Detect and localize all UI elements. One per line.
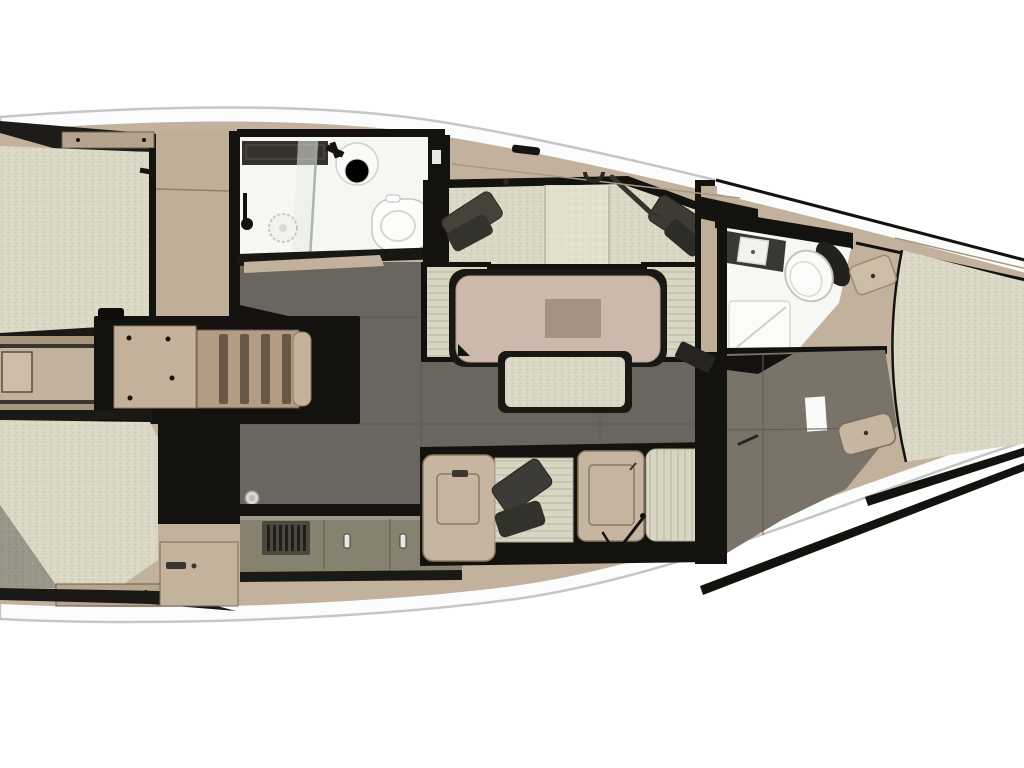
salon-table-inset [545,299,601,338]
galley-sink-drain-inner [249,495,255,501]
fwd-sink-drain [751,250,755,254]
vent-slat-3 [279,525,282,551]
platform-screw-4 [128,396,133,401]
header-screw-left [76,138,80,142]
step-tread-1 [219,334,228,404]
step-tread-2 [240,334,249,404]
wardrobe-gap-shadow [149,148,156,322]
vent-slat-5 [291,525,294,551]
aft-berth-port [0,146,150,333]
bow-deck-locker-dot [871,274,875,278]
companionway-platform [114,326,196,408]
shower-drain-center [279,224,287,232]
transom-step [2,352,32,392]
shower-mixer-knob [241,218,253,230]
platform-screw-2 [166,337,171,342]
locker-hardware-bar [166,562,186,569]
vberth-mattress [892,250,1024,462]
settee-mid-cushion [546,185,608,264]
step-tread-3 [261,334,270,404]
steps-end-cap [293,332,311,406]
fwd-door-gap [805,396,827,431]
step-tread-4 [282,334,291,404]
sheet-block [640,513,646,519]
shadow-right-of-aft-bench [158,420,240,524]
aft-wardrobe [156,130,230,322]
galley-handle-1 [344,534,350,548]
head-sink-bowl [345,159,369,183]
galley-handle-2 [400,534,406,548]
vent-slat-4 [285,525,288,551]
nav-cabinet-a-notch [452,470,468,477]
stern-locker-panel [160,542,238,606]
floorplan-shapes [0,108,1024,622]
vent-slat-1 [267,525,270,551]
head-wall-sliver-1 [432,150,441,164]
fwd-shower-pan [729,301,790,351]
platform-screw-1 [127,336,132,341]
fwd-cabin-bench-dot [864,431,868,435]
locker-hardware-knob [192,564,197,569]
vent-slat-6 [297,525,300,551]
floorplan-svg [0,0,1024,768]
salon-bench-cushion [505,357,625,407]
vent-slat-2 [273,525,276,551]
platform-screw-3 [170,376,175,381]
head-left-wall [229,131,240,319]
aft-bench-top-shadow [0,410,152,420]
deck-fitting-dot [503,179,509,185]
galley-bottom-shadow [240,570,462,582]
header-screw-right [142,138,146,142]
aft-cabin-header-shelf [62,132,154,148]
vent-slat-7 [303,525,306,551]
cleat-top [98,308,124,320]
toilet-port-flush [386,195,400,202]
yacht-floorplan [0,0,1024,768]
